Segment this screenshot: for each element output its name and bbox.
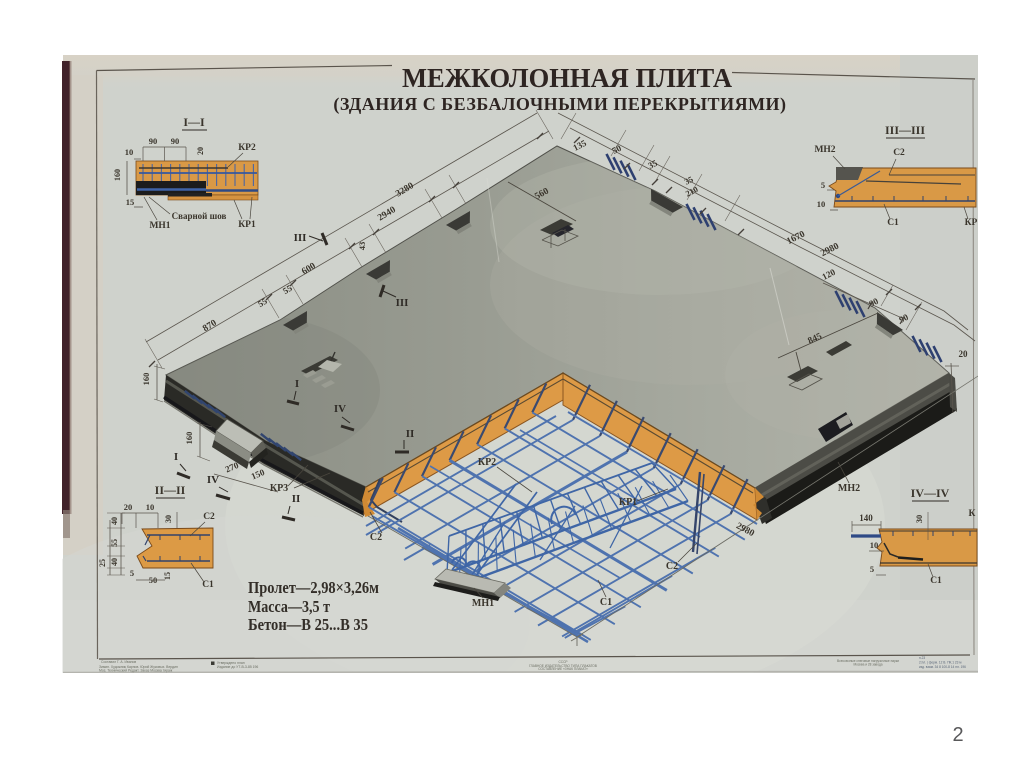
- svg-text:30: 30: [914, 515, 924, 524]
- svg-text:изд. взам. 34 8 100-8 14 пл. 1: изд. взам. 34 8 100-8 14 пл. 196: [919, 665, 966, 669]
- svg-text:2: 2: [952, 724, 963, 746]
- svg-text:90: 90: [149, 136, 158, 146]
- svg-text:I—I: I—I: [183, 115, 205, 129]
- svg-text:МН2: МН2: [838, 483, 860, 494]
- svg-text:5: 5: [870, 564, 874, 574]
- svg-text:15: 15: [163, 572, 172, 580]
- svg-text:140: 140: [859, 513, 873, 523]
- svg-text:С1: С1: [887, 218, 899, 228]
- svg-text:15: 15: [126, 197, 135, 207]
- svg-text:Издание до УТ-В-3-85 196: Издание до УТ-В-3-85 196: [217, 665, 258, 669]
- svg-text:С2: С2: [666, 561, 678, 572]
- svg-text:С2: С2: [893, 148, 905, 158]
- svg-text:III: III: [396, 297, 409, 309]
- svg-text:30: 30: [164, 515, 173, 523]
- svg-text:160: 160: [113, 169, 122, 181]
- svg-text:К: К: [969, 509, 976, 519]
- svg-text:КР1: КР1: [238, 220, 256, 230]
- svg-text:(ЗДАНИЯ С БЕЗБАЛОЧНЫМИ ПЕРЕКРЫ: (ЗДАНИЯ С БЕЗБАЛОЧНЫМИ ПЕРЕКРЫТИЯМИ): [333, 94, 786, 115]
- svg-text:III: III: [294, 232, 307, 244]
- svg-text:МН1: МН1: [472, 598, 494, 609]
- svg-text:40: 40: [110, 558, 119, 566]
- svg-text:20: 20: [124, 502, 133, 512]
- svg-text:С1: С1: [600, 597, 612, 608]
- svg-text:20: 20: [959, 349, 969, 359]
- svg-text:Масса—3,5 т: Масса—3,5 т: [248, 597, 331, 616]
- svg-text:40: 40: [110, 517, 119, 525]
- svg-text:Сварной шов: Сварной шов: [172, 211, 227, 221]
- svg-text:10: 10: [817, 199, 826, 209]
- svg-text:IV: IV: [207, 474, 219, 486]
- svg-text:МН2: МН2: [814, 145, 835, 155]
- svg-text:I: I: [295, 378, 299, 390]
- svg-text:20: 20: [196, 147, 205, 155]
- svg-text:IV: IV: [334, 403, 346, 415]
- svg-text:II: II: [292, 493, 301, 505]
- svg-text:5: 5: [130, 568, 134, 578]
- svg-text:С2: С2: [203, 512, 215, 522]
- svg-text:КР2: КР2: [238, 143, 256, 153]
- svg-text:90: 90: [171, 136, 180, 146]
- svg-text:п.23: п.23: [919, 656, 925, 660]
- svg-text:С2: С2: [370, 532, 382, 543]
- svg-text:Москва и 28 завода: Москва и 28 завода: [853, 663, 882, 667]
- svg-text:5: 5: [821, 180, 825, 190]
- svg-text:II—II: II—II: [155, 483, 186, 497]
- svg-text:КР1: КР1: [619, 497, 637, 508]
- svg-text:КР3: КР3: [270, 483, 288, 494]
- svg-text:25: 25: [98, 559, 107, 567]
- svg-text:КР: КР: [965, 218, 978, 228]
- svg-text:10: 10: [125, 147, 134, 157]
- svg-text:Мos. Технический Редакт. Заказ: Мos. Технический Редакт. Заказ Москва ти…: [99, 669, 173, 673]
- svg-text:10: 10: [870, 540, 879, 550]
- svg-text:IV—IV: IV—IV: [911, 486, 950, 500]
- svg-text:С1: С1: [930, 576, 942, 586]
- svg-text:СОСТАВЛЕНИЕ «ЗНАК ПЛАКАТ»: СОСТАВЛЕНИЕ «ЗНАК ПЛАКАТ»: [538, 667, 588, 671]
- svg-text:160: 160: [184, 432, 194, 445]
- svg-text:Пролет—2,98×3,26м: Пролет—2,98×3,26м: [248, 578, 379, 597]
- svg-text:43: 43: [357, 242, 367, 251]
- svg-text:55: 55: [110, 539, 119, 547]
- svg-text:МЕЖКОЛОННАЯ ПЛИТА: МЕЖКОЛОННАЯ ПЛИТА: [402, 63, 732, 93]
- svg-text:МН1: МН1: [149, 221, 170, 231]
- svg-text:I: I: [174, 451, 178, 463]
- svg-text:2:пл. | форм. 12 В. ПК.1 23 м: 2:пл. | форм. 12 В. ПК.1 23 м: [919, 661, 962, 665]
- svg-text:160: 160: [141, 373, 151, 386]
- svg-text:10: 10: [146, 502, 155, 512]
- svg-text:Бетон—В 25...В 35: Бетон—В 25...В 35: [248, 615, 368, 634]
- svg-text:III—III: III—III: [885, 123, 925, 137]
- svg-text:II: II: [406, 428, 415, 440]
- svg-text:КР2: КР2: [478, 457, 496, 468]
- svg-text:Составил Г. А. Иванов: Составил Г. А. Иванов: [101, 660, 136, 664]
